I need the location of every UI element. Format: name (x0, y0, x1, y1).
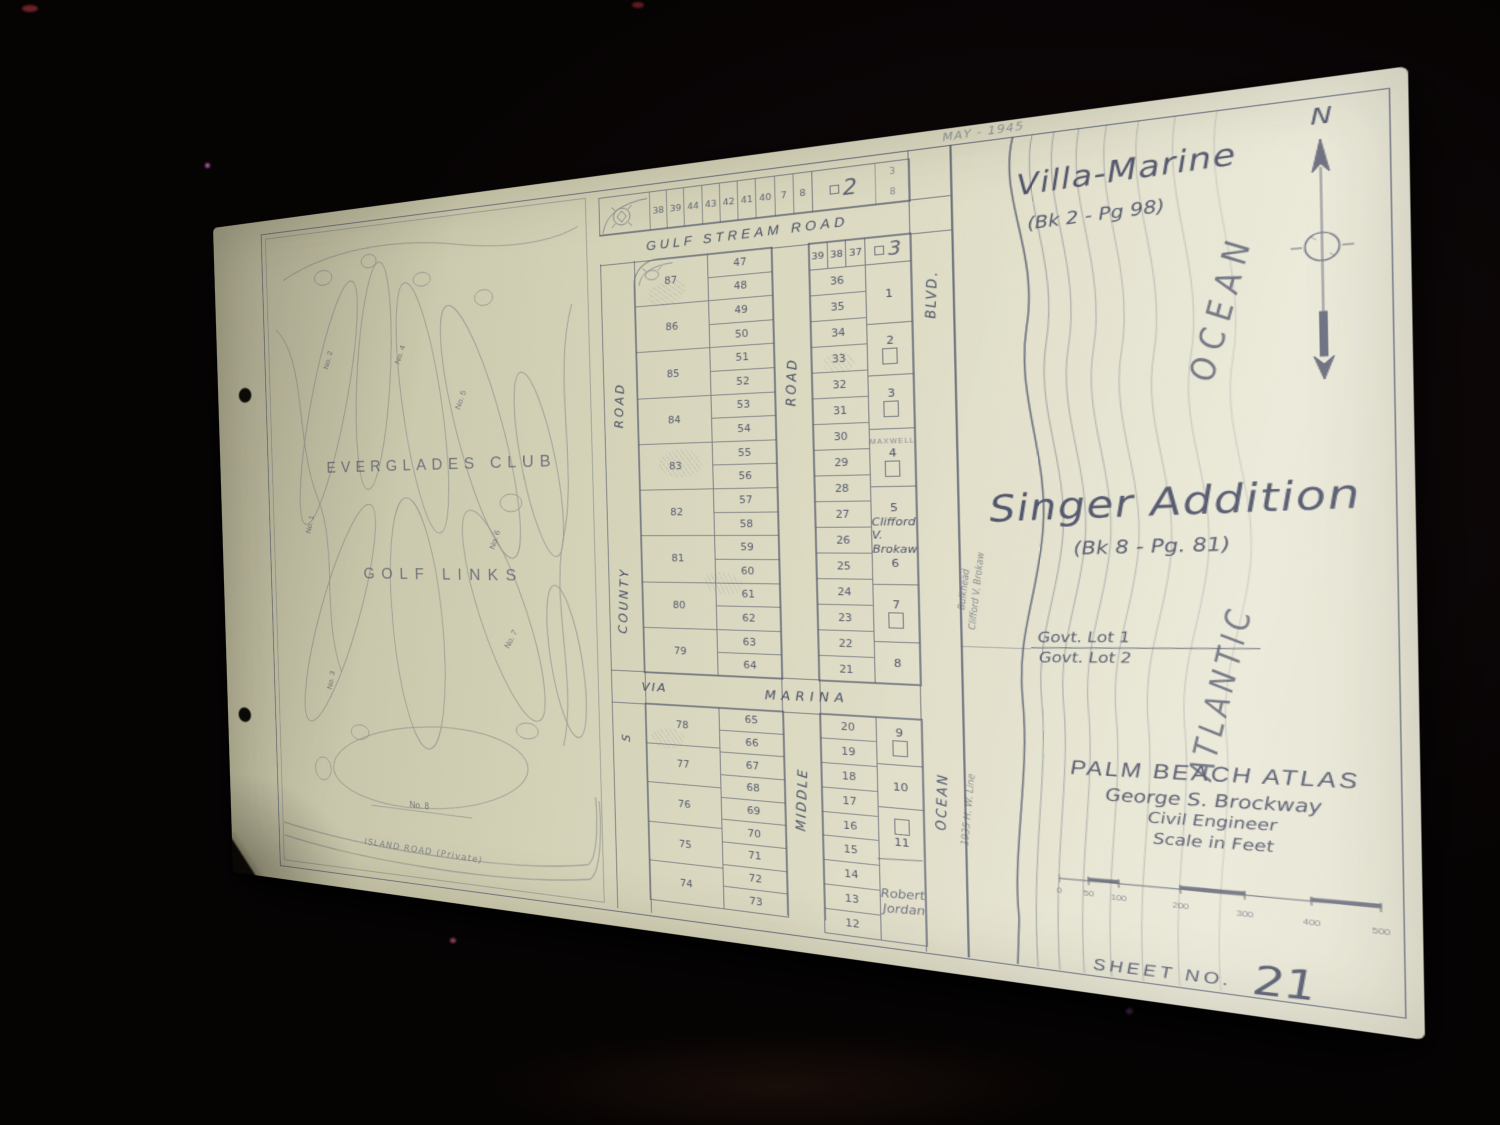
building-square-icon (892, 740, 908, 757)
lot-number: 74 (650, 860, 724, 909)
building-square-icon (889, 612, 905, 629)
lot-number: 41 (737, 179, 756, 220)
lot-1: 1 (866, 261, 913, 324)
lot-number: 7 (892, 598, 900, 611)
lot-number: 24 (817, 578, 873, 605)
lot-number: 38 (826, 240, 845, 268)
lot-number: 10 (893, 780, 909, 794)
scale-tick-400: 400 (1303, 916, 1321, 928)
photo-speck (205, 163, 210, 168)
lot-number: 40 (755, 177, 774, 218)
plat-block-lots-79-87: 878685848382818079 474849505152535455565… (633, 247, 783, 680)
lot-number: 44 (683, 186, 702, 226)
lot-number: 77 (647, 742, 721, 788)
lot-number: 2 (886, 333, 894, 347)
golf-course-panel: EVERGLADES CLUB GOLF LINKS No. 1 No. 2 N… (261, 192, 610, 909)
lot-number: 8 (890, 187, 896, 198)
lot-number: 25 (816, 552, 872, 578)
small-lot-column: 474849505152535455565758596061626364 (707, 248, 782, 679)
golf-fairways-drawing (261, 192, 610, 909)
lot-number: 3 (887, 386, 895, 400)
lot-4-maxwell: MAXWELL 4 (869, 427, 916, 486)
lot-number: 28 (814, 474, 870, 501)
lot-number: 53 (712, 391, 776, 418)
punch-hole (238, 706, 252, 723)
scale-tick-500: 500 (1372, 925, 1391, 938)
photo-stage: EVERGLADES CLUB GOLF LINKS No. 1 No. 2 N… (0, 0, 1500, 1125)
county-road-label-county: COUNTY (617, 567, 632, 634)
lot-number: 52 (711, 367, 775, 394)
plat-block-jordan-lots: 201918171615141312 9 10 11 Robert Jordan (819, 713, 928, 947)
building-square-icon (882, 347, 898, 364)
singer-addition-reference: (Bk 8 - Pg. 81) (1073, 534, 1232, 560)
small-lot-column: 201918171615141312 (820, 714, 881, 940)
lot-number: 3 (889, 166, 895, 177)
lot-number: 32 (812, 370, 868, 399)
lot-number: 23 (817, 604, 873, 631)
lot-2: 2 (867, 321, 914, 376)
lot-robert-jordan: Robert Jordan (878, 858, 930, 945)
lot-9: 9 (877, 717, 923, 766)
scale-tick-100: 100 (1111, 892, 1127, 903)
lot-number: 58 (715, 511, 779, 535)
lot-number: 43 (701, 184, 720, 225)
ocean-blvd-label: BLVD. (922, 270, 941, 319)
lot-number: 8 (894, 657, 902, 670)
building-square-icon (884, 400, 900, 417)
traffic-circle-ornament-icon (599, 193, 650, 234)
lot-number: 63 (718, 629, 782, 655)
lot-number: 37 (845, 238, 865, 266)
lot-number: 62 (717, 606, 781, 631)
lot-5-6-brokaw: 5 Clifford V. Brokaw 6 (871, 485, 919, 584)
building-square-icon (875, 245, 885, 255)
lot-number: 8 (792, 172, 812, 214)
atlas-sheet-paper: EVERGLADES CLUB GOLF LINKS No. 1 No. 2 N… (213, 66, 1425, 1040)
lot-number: 55 (713, 439, 777, 465)
ocean-road-lower-label: OCEAN (932, 772, 951, 832)
scale-tick-200: 200 (1172, 899, 1189, 911)
middle-road-label-road: ROAD (784, 357, 801, 407)
lot-number: 82 (640, 488, 715, 535)
building-square-icon (830, 184, 840, 194)
lot-number: 22 (818, 629, 874, 657)
photo-speck (22, 5, 38, 12)
building-square-icon (894, 818, 910, 836)
sheet-number-value: 21 (1252, 958, 1319, 1011)
scale-tick-0: 0 (1057, 885, 1062, 895)
lot-number: 31 (813, 396, 869, 424)
owner-name: Brokaw (872, 543, 917, 556)
lot-number: 34 (811, 317, 867, 347)
lot-number: 56 (714, 463, 778, 488)
lot-number: 1 (885, 286, 893, 300)
photo-speck (632, 2, 644, 8)
building-square-icon (885, 460, 901, 477)
top-strip-end-lots: 3 8 (874, 160, 909, 205)
named-lot-column: 9 10 11 Robert Jordan (875, 717, 926, 946)
lot-number: 38 (649, 190, 667, 230)
lot-header-row: 393837 (809, 238, 865, 269)
county-road-label-road: ROAD (613, 382, 628, 429)
lot-number: 21 (819, 655, 875, 683)
middle-road-label-middle: MIDDLE (794, 767, 811, 833)
lot-number: 29 (814, 448, 870, 475)
lot-number: 27 (815, 500, 871, 526)
lot-number: 9 (895, 726, 903, 740)
small-lot-column: 656667686970717273 (719, 708, 788, 917)
lot-10: 10 (878, 763, 924, 810)
lot-number: 39 (666, 188, 684, 228)
lot-number: 11 (894, 835, 910, 850)
lot-number: 26 (816, 527, 872, 553)
plat-block-singer-lots: 393837 3 3635343332313029282726252423222… (808, 232, 922, 686)
owner-name: Jordan (882, 901, 925, 918)
lot-3: 3 (868, 373, 915, 429)
lot-number: 4 (889, 446, 897, 459)
lot-8: 8 (874, 641, 920, 685)
lot-number: 84 (637, 395, 712, 445)
lot-number: 80 (642, 581, 717, 629)
table-glare (430, 1020, 1130, 1125)
photo-speck (450, 938, 456, 943)
lot-number: 6 (891, 557, 899, 570)
lot-number: 57 (714, 487, 778, 512)
lot-number: 85 (636, 348, 711, 399)
lot-number: 86 (635, 300, 710, 352)
lot-number: 42 (719, 181, 738, 222)
lot-number: 59 (715, 535, 779, 559)
lot-number: 7 (773, 174, 793, 216)
block-3-badge: 3 (864, 234, 911, 265)
owner-name: Clifford V. (872, 515, 918, 542)
owner-name: MAXWELL (870, 437, 916, 446)
lot-number: 79 (643, 627, 718, 676)
lot-number: 39 (809, 242, 827, 270)
via-label: VIA (641, 680, 667, 695)
scale-tick-50: 50 (1084, 887, 1095, 898)
county-road-label-s: S (620, 734, 633, 743)
lot-number: 5 (890, 501, 898, 514)
lot-number: 81 (641, 535, 716, 582)
lot-number: 54 (712, 415, 776, 441)
scale-tick-300: 300 (1236, 907, 1253, 919)
block-3-number: 3 (888, 237, 902, 261)
paper-corner-fold (232, 831, 264, 876)
lot-11: 11 (879, 806, 925, 862)
block-2-number: 2 (842, 174, 857, 200)
small-lot-column: 36353433323130292827262524232221 (809, 266, 874, 683)
punch-hole (238, 387, 252, 404)
lot-number: 30 (813, 422, 869, 450)
photo-speck (1126, 1008, 1133, 1014)
golf-club-title-line2: GOLF LINKS (363, 565, 524, 586)
lot-7: 7 (873, 584, 920, 643)
